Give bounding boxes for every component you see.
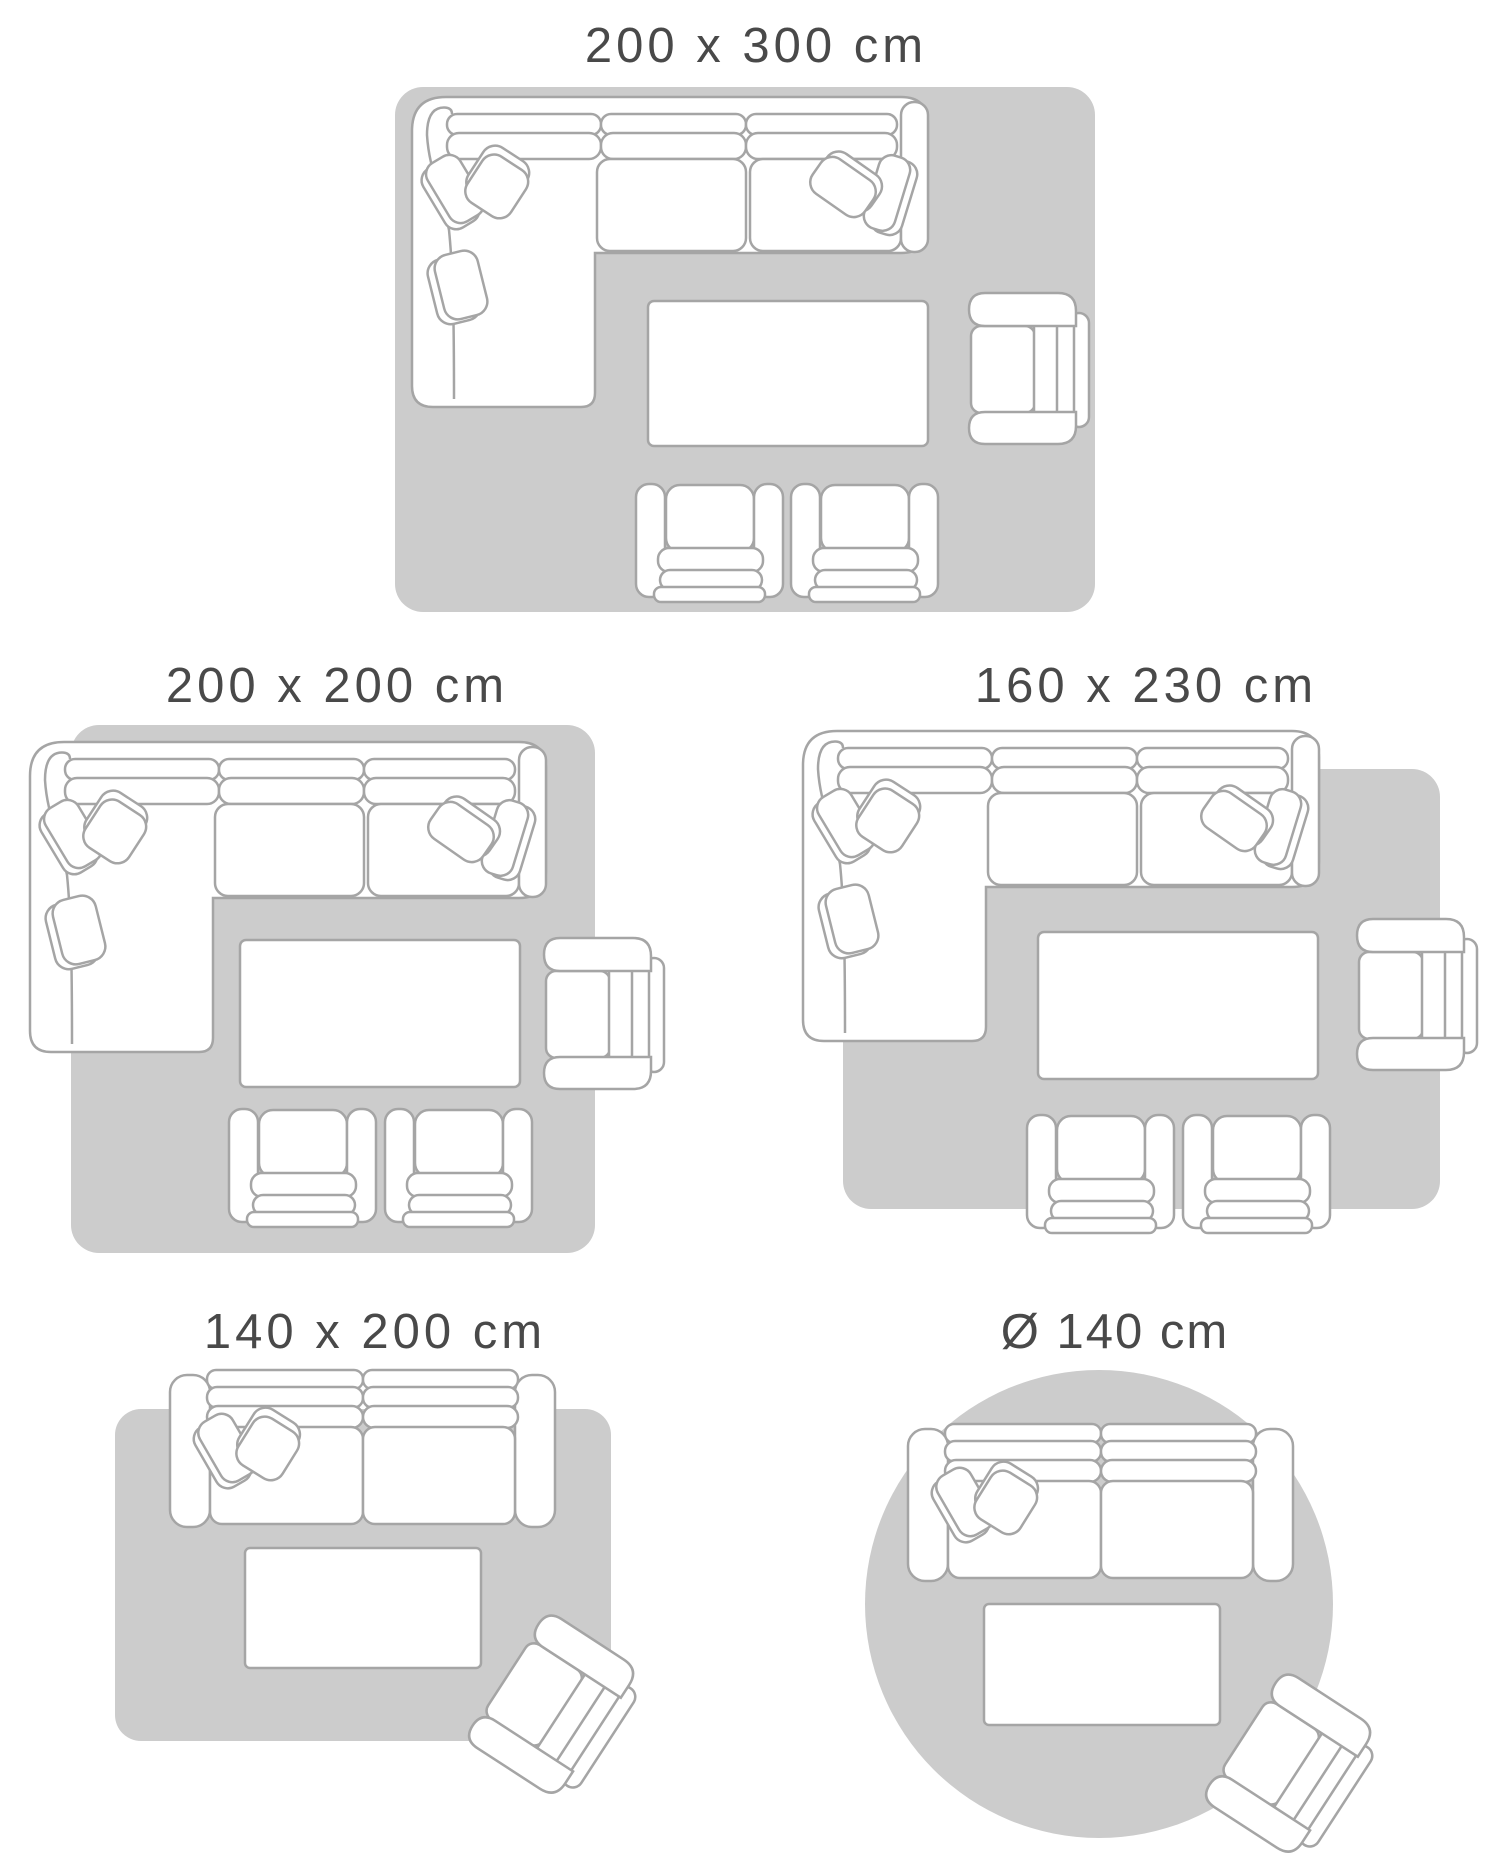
svg-text:200 x 200 cm: 200 x 200 cm [166,659,508,713]
svg-text:140 x 200 cm: 140 x 200 cm [204,1305,546,1359]
svg-text:Ø 140 cm: Ø 140 cm [1001,1305,1229,1359]
svg-text:200 x 300 cm: 200 x 300 cm [585,19,927,73]
svg-text:160 x 230 cm: 160 x 230 cm [975,659,1317,713]
